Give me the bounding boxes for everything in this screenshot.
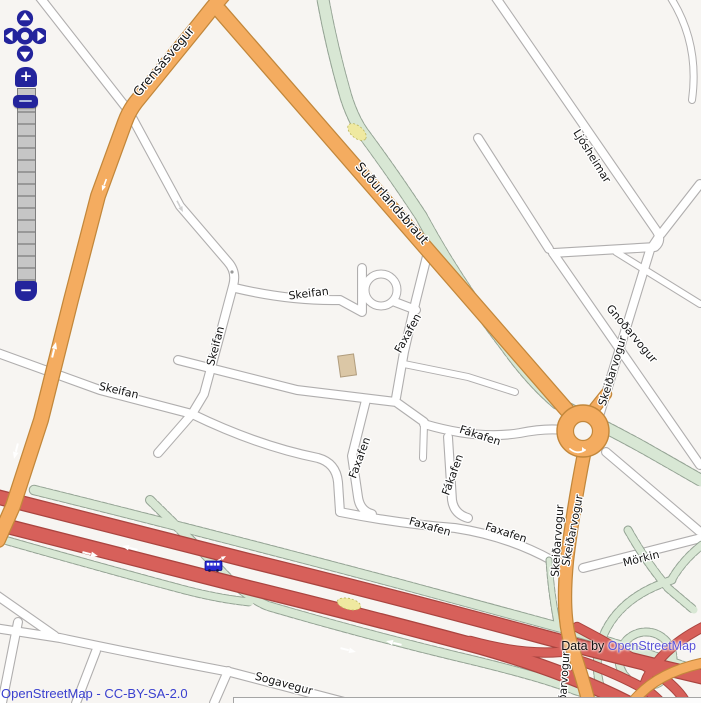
attribution-prefix: Data by — [561, 639, 608, 653]
horizontal-scrollbar[interactable] — [233, 697, 701, 703]
zoom-out-button[interactable]: − — [15, 281, 37, 301]
attribution-license[interactable]: OpenStreetMap - CC-BY-SA-2.0 — [1, 686, 188, 701]
map-viewport[interactable]: Grensásvegur Suðurlandsbraut Ljósheimar … — [0, 0, 701, 703]
road-node-dot — [230, 270, 233, 273]
pan-compass[interactable] — [4, 9, 46, 63]
building — [338, 354, 357, 377]
zoom-slider-track[interactable] — [17, 88, 36, 283]
zoom-in-button[interactable]: + — [15, 67, 37, 87]
zoom-slider-handle[interactable] — [13, 95, 38, 108]
openstreetmap-link[interactable]: OpenStreetMap — [608, 639, 696, 653]
zoom-handle-grip — [19, 100, 32, 102]
compass-center — [21, 32, 29, 40]
roundabout-island — [574, 422, 593, 441]
map-canvas[interactable]: Grensásvegur Suðurlandsbraut Ljósheimar … — [0, 0, 701, 703]
bus-icon — [205, 561, 222, 572]
attribution-data-by: Data by OpenStreetMap — [561, 639, 696, 653]
